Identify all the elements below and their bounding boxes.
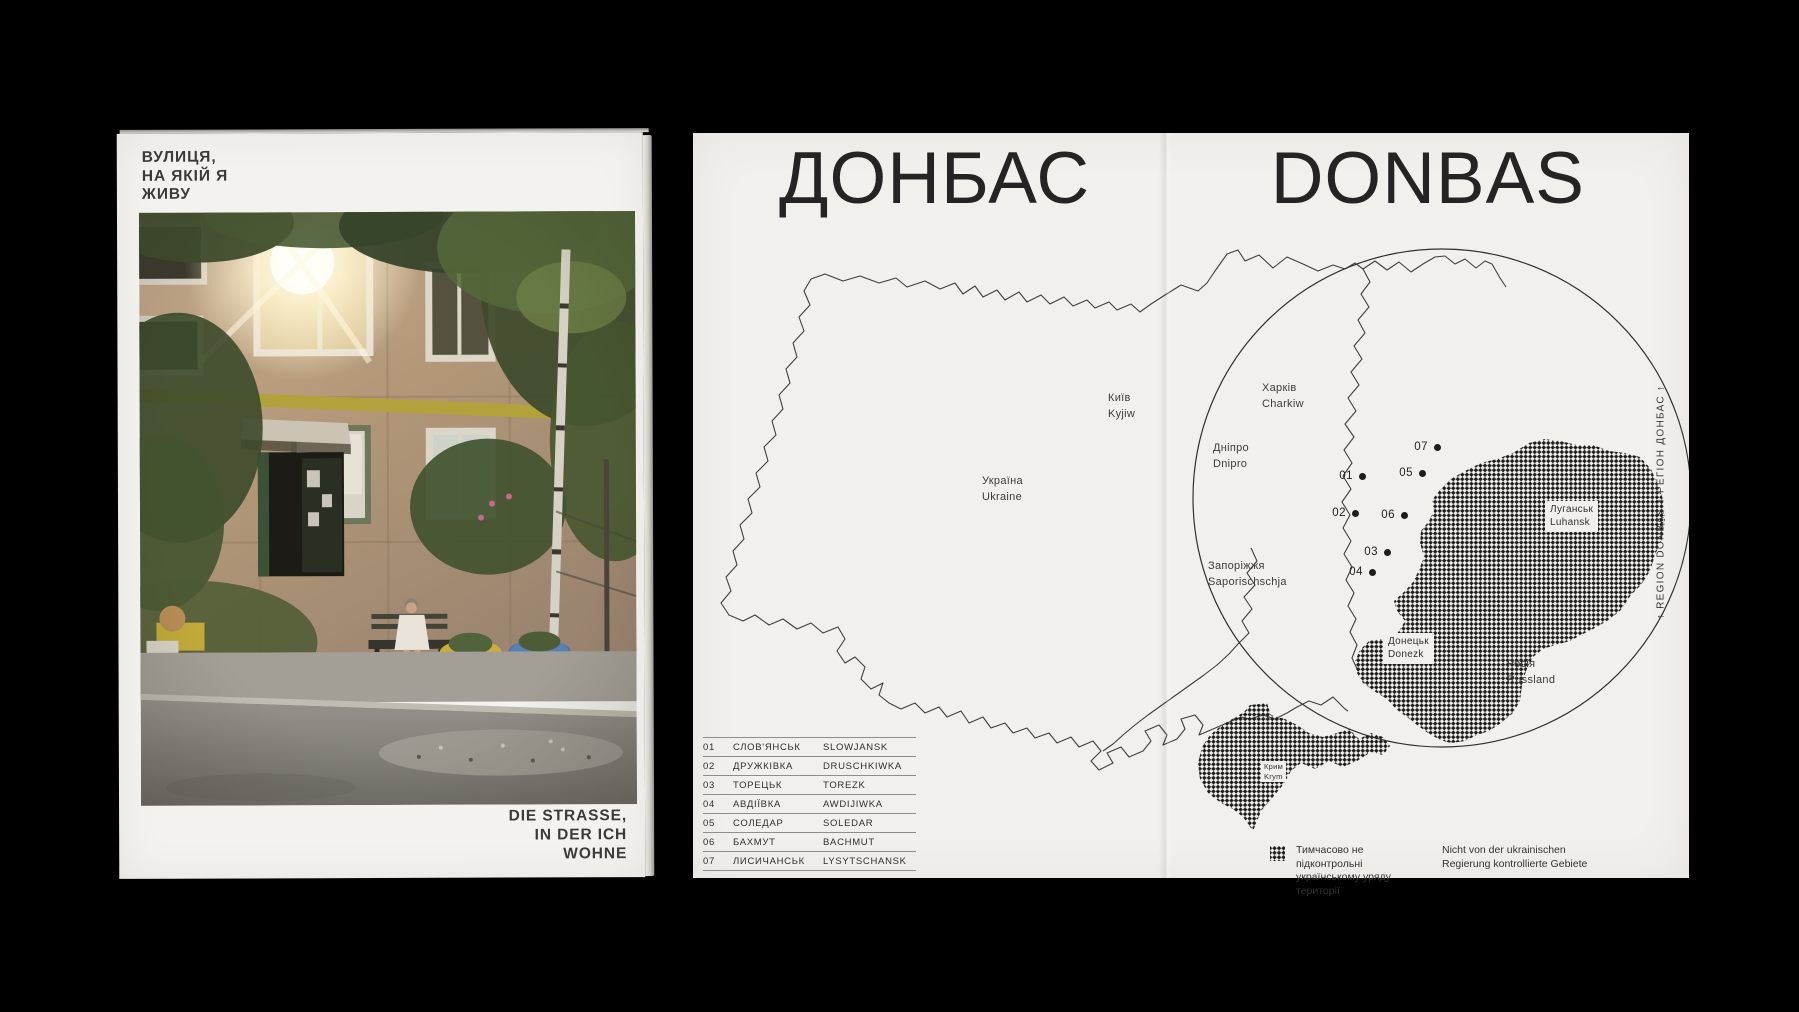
label-russia-de: Russland [1507, 673, 1555, 689]
row-name-de: SLOWJANSK [823, 742, 916, 753]
legend-de-line1: Nicht von der ukrainischen [1442, 844, 1587, 858]
city-marker-06: 06 [1364, 507, 1408, 523]
label-ukraine-uk: Україна [982, 474, 1023, 490]
cover-subtitle-line1: DIE STRASSE, [509, 806, 628, 825]
row-name-uk: СЛОВ'ЯНСЬК [733, 742, 823, 753]
city-marker-07: 07 [1397, 439, 1441, 455]
marker-num: 05 [1399, 467, 1413, 479]
map-label-kharkiv: Харків Charkiw [1262, 381, 1304, 412]
city-marker-01: 01 [1322, 468, 1366, 484]
table-row: 02 ДРУЖКІВКА DRUSCHKIWKA [703, 756, 916, 775]
label-donetsk-uk: Донецьк [1388, 635, 1429, 648]
label-luhansk-uk: Луганськ [1550, 503, 1593, 516]
legend: Тимчасово не підконтрольні українському … [1270, 844, 1587, 898]
label-russia-uk: Росія [1507, 657, 1555, 673]
city-dot [1384, 549, 1391, 556]
row-name-uk: АВДІЇВКА [733, 799, 823, 810]
label-ukraine-de: Ukraine [982, 490, 1023, 506]
cover-subtitle-line2: IN DER ICH [509, 825, 628, 844]
city-marker-05: 05 [1382, 465, 1426, 481]
page-fold [1159, 133, 1173, 878]
row-name-uk: ТОРЕЦЬК [733, 780, 823, 791]
row-num: 02 [703, 761, 733, 772]
book-cover: ВУЛИЦЯ, НА ЯКІЙ Я ЖИВУ [117, 132, 646, 879]
row-num: 04 [703, 799, 733, 810]
label-kyiv-uk: Київ [1108, 391, 1135, 407]
boxed-label-luhansk: Луганськ Luhansk [1545, 501, 1598, 532]
legend-text-uk: Тимчасово не підконтрольні українському … [1296, 844, 1432, 898]
crimea-occupied-area [1198, 703, 1390, 831]
row-name-uk: СОЛЕДАР [733, 818, 823, 829]
city-dot [1401, 512, 1408, 519]
label-kyiv-de: Kyjiw [1108, 407, 1135, 423]
row-name-de: TOREZK [823, 780, 916, 791]
label-kharkiv-uk: Харків [1262, 381, 1304, 397]
label-donetsk-de: Donezk [1388, 648, 1429, 661]
map-label-russia: Росія Russland [1507, 657, 1555, 688]
label-dnipro-uk: Дніпро [1213, 441, 1249, 457]
city-dot [1352, 510, 1359, 517]
cover-title-line3: ЖИВУ [142, 186, 228, 205]
row-name-uk: ДРУЖКІВКА [733, 761, 823, 772]
map-label-dnipro: Дніпро Dnipro [1213, 441, 1249, 472]
cover-title-line2: НА ЯКІЙ Я [142, 167, 228, 186]
map-label-zaporizhzhia: Запоріжжя Saporischschja [1208, 559, 1287, 590]
row-name-uk: ЛИСИЧАНСЬК [733, 856, 823, 867]
north-border-east [1363, 256, 1506, 287]
page-stack-edge [643, 135, 655, 876]
row-name-de: DRUSCHKIWKA [823, 761, 916, 772]
marker-num: 03 [1364, 546, 1378, 558]
photo-vignette [139, 211, 637, 806]
label-zaporizhzhia-uk: Запоріжжя [1208, 559, 1287, 575]
legend-de-line2: Regierung kontrollierte Gebiete [1442, 858, 1587, 872]
city-marker-04: 04 [1332, 564, 1376, 580]
label-luhansk-de: Luhansk [1550, 516, 1593, 529]
city-dot [1369, 569, 1376, 576]
row-name-de: BACHMUT [823, 837, 916, 848]
cover-subtitle: DIE STRASSE, IN DER ICH WOHNE [509, 806, 628, 863]
row-num: 05 [703, 818, 733, 829]
city-dot [1359, 473, 1366, 480]
photo-of-book-spread: ВУЛИЦЯ, НА ЯКІЙ Я ЖИВУ [0, 0, 1799, 1012]
row-num: 06 [703, 837, 733, 848]
page-stack-top-edge [120, 128, 649, 134]
row-num: 07 [703, 856, 733, 867]
legend-uk-line2: українському уряду території [1296, 871, 1432, 898]
row-num: 03 [703, 780, 733, 791]
cover-subtitle-line3: WOHNE [509, 844, 628, 863]
table-row: 06 БАХМУТ BACHMUT [703, 832, 916, 851]
row-num: 01 [703, 742, 733, 753]
label-zaporizhzhia-de: Saporischschja [1208, 575, 1287, 591]
marker-num: 06 [1381, 509, 1395, 521]
map-label-ukraine: Україна Ukraine [982, 474, 1023, 505]
table-row: 04 АВДІЇВКА AWDIJIWKA [703, 794, 916, 813]
row-name-de: SOLEDAR [823, 818, 916, 829]
map-spread: ДОНБАС DONBAS [693, 133, 1689, 878]
label-crimea-uk: Крим [1264, 762, 1283, 772]
boxed-label-crimea: Крим Krym [1261, 761, 1286, 782]
legend-text-de: Nicht von der ukrainischen Regierung kon… [1442, 844, 1587, 898]
table-row: 07 ЛИСИЧАНСЬК LYSYTSCHANSK [703, 851, 916, 871]
row-name-de: AWDIJIWKA [823, 799, 916, 810]
cover-title: ВУЛИЦЯ, НА ЯКІЙ Я ЖИВУ [142, 149, 228, 205]
marker-num: 07 [1414, 441, 1428, 453]
margin-note: ↑ REGION DONBAS ↑ РЕГІОН ДОНБАС ↑ [1656, 385, 1667, 620]
city-dot [1434, 444, 1441, 451]
table-row: 01 СЛОВ'ЯНСЬК SLOWJANSK [703, 737, 916, 756]
row-name-uk: БАХМУТ [733, 837, 823, 848]
city-marker-03: 03 [1347, 544, 1391, 560]
city-marker-02: 02 [1315, 505, 1359, 521]
ukraine-outline [721, 250, 1363, 770]
marker-num: 02 [1332, 507, 1346, 519]
boxed-label-donetsk: Донецьк Donezk [1383, 633, 1434, 664]
hatch-swatch-icon [1270, 846, 1285, 861]
table-row: 03 ТОРЕЦЬК TOREZK [703, 775, 916, 794]
cover-title-line1: ВУЛИЦЯ, [142, 149, 228, 168]
map-label-kyiv: Київ Kyjiw [1108, 391, 1135, 422]
row-name-de: LYSYTSCHANSK [823, 856, 916, 867]
label-crimea-de: Krym [1264, 772, 1283, 782]
label-kharkiv-de: Charkiw [1262, 397, 1304, 413]
marker-num: 04 [1349, 566, 1363, 578]
table-row: 05 СОЛЕДАР SOLEDAR [703, 813, 916, 832]
donbas-occupied-area [1355, 439, 1665, 743]
city-index-table: 01 СЛОВ'ЯНСЬК SLOWJANSK 02 ДРУЖКІВКА DRU… [703, 737, 916, 871]
cover-photo [139, 211, 637, 806]
legend-uk-line1: Тимчасово не підконтрольні [1296, 844, 1432, 871]
marker-num: 01 [1339, 470, 1353, 482]
label-dnipro-de: Dnipro [1213, 457, 1249, 473]
city-dot [1419, 470, 1426, 477]
